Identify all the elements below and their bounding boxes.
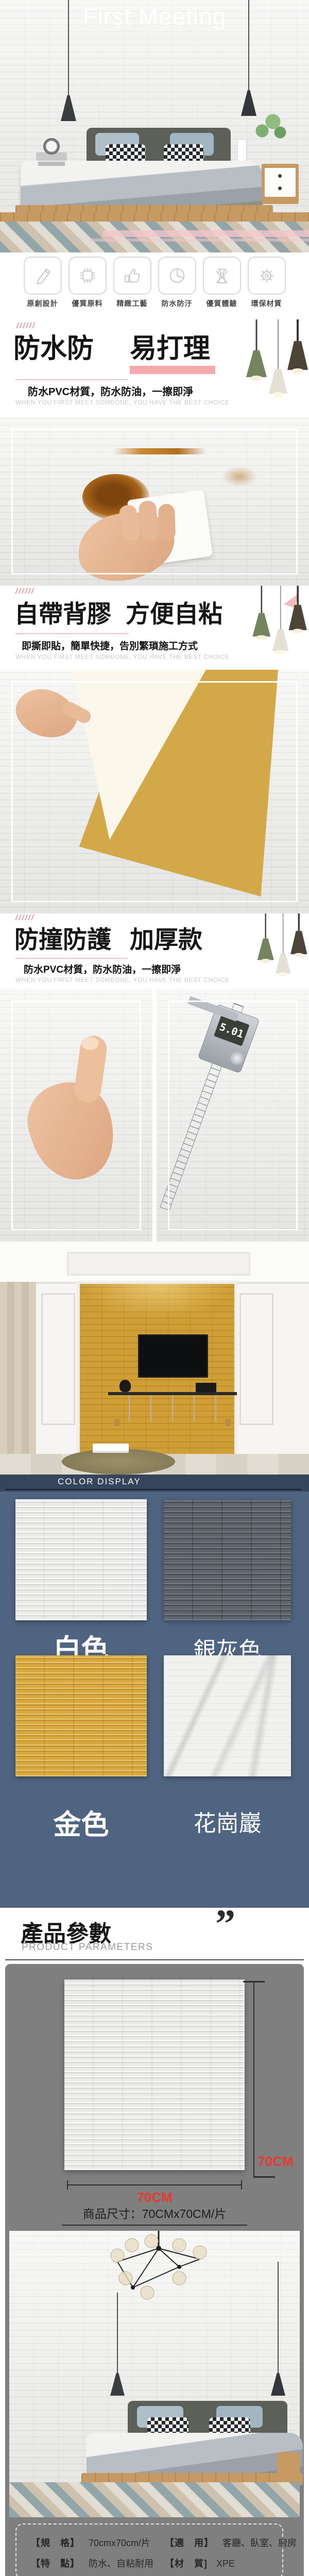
- spec-label: 【材 質]: [165, 2558, 208, 2569]
- chip-icon: [68, 257, 107, 295]
- rug: [9, 2482, 300, 2517]
- nightstand: [277, 2452, 300, 2483]
- spec-label: 【規 格】: [31, 2538, 80, 2548]
- caliper-panel: 5.01: [157, 989, 309, 1242]
- console-leg: [226, 1419, 231, 1426]
- banner-title: COLOR DISPLAY: [0, 1475, 309, 1487]
- pendant-lamps-icon: [256, 913, 308, 989]
- pink-ribbon: [88, 239, 309, 242]
- pink-ribbon: [103, 230, 309, 237]
- spec-row: 【適 用】 客廳、臥室、廚房: [165, 2536, 297, 2549]
- caliper-reading: 5.01: [218, 1021, 245, 1041]
- spec-row: 【材 質] XPE: [165, 2556, 235, 2570]
- dimension-tick: [67, 2180, 68, 2190]
- vase-decor: [119, 1380, 131, 1392]
- wall-molding: [239, 1293, 273, 1425]
- swatch-white: [15, 1499, 147, 1620]
- decor-letters: [196, 1383, 216, 1392]
- section-title-part: 易打理: [130, 327, 210, 365]
- plant: [251, 112, 287, 143]
- pink-line: [15, 633, 129, 634]
- section-title-part: 防撞防護: [14, 920, 111, 955]
- pendant-lamps-icon: [251, 586, 308, 668]
- console-leg: [114, 1419, 119, 1426]
- height-dimension-label: 70CM: [257, 2154, 293, 2170]
- spec-value: 防水、自粘耐用: [89, 2558, 153, 2569]
- swatch-silver-gray: [164, 1499, 291, 1620]
- stain-spot: [221, 466, 257, 487]
- dimension-cap: [253, 2176, 275, 2178]
- ceiling-recess: [67, 1252, 250, 1276]
- pendant-lamps-icon: [246, 319, 308, 413]
- pink-underline-bar: [130, 366, 215, 374]
- pink-line: [15, 958, 128, 959]
- thumbnail: [81, 1037, 99, 1050]
- horizontal-dimension-line: [67, 2184, 242, 2185]
- section-subtitle: 即撕即貼，簡單快捷，告別繁瑣施工方式: [22, 638, 198, 652]
- finger: [158, 503, 176, 541]
- clock-icon: [158, 257, 196, 295]
- swatch-granite: [164, 1655, 291, 1776]
- section-tagline: WHEN YOU FIRST MEET SOMEONE, YOU HAVE TH…: [15, 399, 230, 406]
- feature-item: 環保材質: [248, 257, 286, 309]
- swatch-gold: [15, 1655, 147, 1776]
- section-tagline: WHEN YOU FIRST MEET SOMEONE, YOU HAVE TH…: [15, 976, 230, 984]
- drawer-knob: [278, 174, 282, 178]
- press-test-panel: [0, 989, 152, 1242]
- pendant-lamp-icon: [110, 2293, 125, 2396]
- stain-streak: [113, 448, 206, 454]
- pink-line: [15, 379, 128, 380]
- pendant-lamp-icon: [61, 0, 76, 121]
- spec-label: 【適 用】: [165, 2538, 214, 2548]
- hand: [18, 1072, 127, 1190]
- benefit-heading-3: ////// 防撞防護 加厚款 防水PVC材質，防水防油，一擦即淨 WHEN Y…: [0, 913, 309, 989]
- feature-item: 優質體驗: [203, 257, 241, 309]
- section-tagline: WHEN YOU FIRST MEET SOMEONE, YOU HAVE TH…: [15, 653, 230, 660]
- no-fabric-icon: [203, 257, 241, 295]
- adhesive-backing-image: [0, 670, 309, 913]
- hero-bedroom-image: First Meeting: [0, 0, 309, 252]
- product-parameters-panel: 70CM 70CM 商品尺寸：70CMx70CM/片: [0, 1964, 309, 2576]
- section-title-part: 方便自粘: [126, 594, 222, 630]
- table-books: [93, 1444, 129, 1451]
- page-subtitle: PRODUCT PARAMETERS: [22, 1942, 153, 1953]
- section-title-part: 防水防: [13, 327, 94, 365]
- spec-row: 【特 點】 防水、自粘耐用: [31, 2556, 153, 2570]
- drawer-knob: [278, 187, 282, 190]
- waterproof-demo-image: [0, 417, 309, 586]
- banner-underline: [5, 1489, 302, 1490]
- divider-line: [5, 1959, 304, 1960]
- feature-icon-row: 原創設計 優質原料 精緻工藝 防水防汙 優質體驗: [0, 252, 309, 319]
- nightstand-drawer: [265, 168, 296, 197]
- feature-item: 優質原料: [68, 257, 107, 309]
- benefit-heading-2: ////// 自帶背膠 方便自粘 即撕即貼，簡單快捷，告別繁瑣施工方式 WHEN…: [0, 586, 309, 670]
- section-title-part: 自帶背膠: [14, 594, 111, 630]
- tv-console: [108, 1392, 237, 1422]
- color-swatch-section: 白色 銀灰色 金色 花崗巖: [0, 1492, 309, 1908]
- swatch-label: 花崗巖: [164, 1805, 291, 1838]
- pencil-icon: [24, 257, 62, 295]
- caliper-thumbwheel: [228, 1049, 245, 1066]
- dimension-cap: [243, 1981, 265, 1982]
- size-diagram-panel: [64, 1979, 245, 2170]
- vertical-dimension-line: [253, 1981, 254, 2178]
- wall-molding: [41, 1293, 75, 1425]
- feature-item: 防水防汙: [158, 257, 196, 309]
- size-caption: 商品尺寸：70CMx70CM/片: [62, 2204, 247, 2226]
- section-subtitle: 防水PVC材質，防水防油，一擦即淨: [24, 962, 181, 976]
- spec-value: 客廳、臥室、廚房: [222, 2538, 297, 2548]
- thumbs-up-icon: [113, 257, 151, 295]
- section-subtitle: 防水PVC材質，防水防油，一擦即淨: [28, 383, 193, 398]
- dimension-tick: [241, 2180, 242, 2190]
- spec-value: XPE: [216, 2558, 235, 2569]
- swatch-label: 金色: [15, 1802, 147, 1842]
- alarm-clock: [43, 138, 60, 155]
- width-dimension-label: 70CM: [67, 2190, 242, 2206]
- feature-item: 精緻工藝: [113, 257, 151, 309]
- coffee-table: [62, 1449, 175, 1475]
- rug: [0, 222, 309, 252]
- tv: [138, 1334, 208, 1378]
- gold-room-image: [0, 1242, 309, 1475]
- spec-value: 70cmx70cm/片: [89, 2538, 150, 2548]
- product-parameters-heading: 產品參數 ” PRODUCT PARAMETERS: [0, 1908, 309, 1964]
- thickness-demo-image: 5.01: [0, 989, 309, 1242]
- spec-row: 【規 格】 70cmx70cm/片: [31, 2536, 150, 2549]
- color-display-banner: COLOR DISPLAY: [0, 1475, 309, 1492]
- hero-title: First Meeting: [0, 3, 309, 30]
- section-title-part: 加厚款: [130, 920, 202, 955]
- spec-box: 【規 格】 70cmx70cm/片 【特 點】 防水、自粘耐用 【適 用】 客廳…: [15, 2523, 283, 2576]
- pendant-lamp-icon: [271, 2262, 285, 2396]
- gear-icon: [248, 257, 286, 295]
- curtain: [0, 1282, 36, 1475]
- feature-item: 原創設計: [24, 257, 62, 309]
- benefit-heading-1: ////// 防水防 易打理 防水PVC材質，防水防油，一擦即淨 WHEN YO…: [0, 319, 309, 417]
- quote-mark: ”: [215, 1908, 235, 1947]
- bedroom-photo: [9, 2231, 300, 2517]
- pendant-lamp-icon: [241, 0, 256, 116]
- panel-divider: [152, 989, 157, 1242]
- spec-label: 【特 點】: [31, 2558, 80, 2569]
